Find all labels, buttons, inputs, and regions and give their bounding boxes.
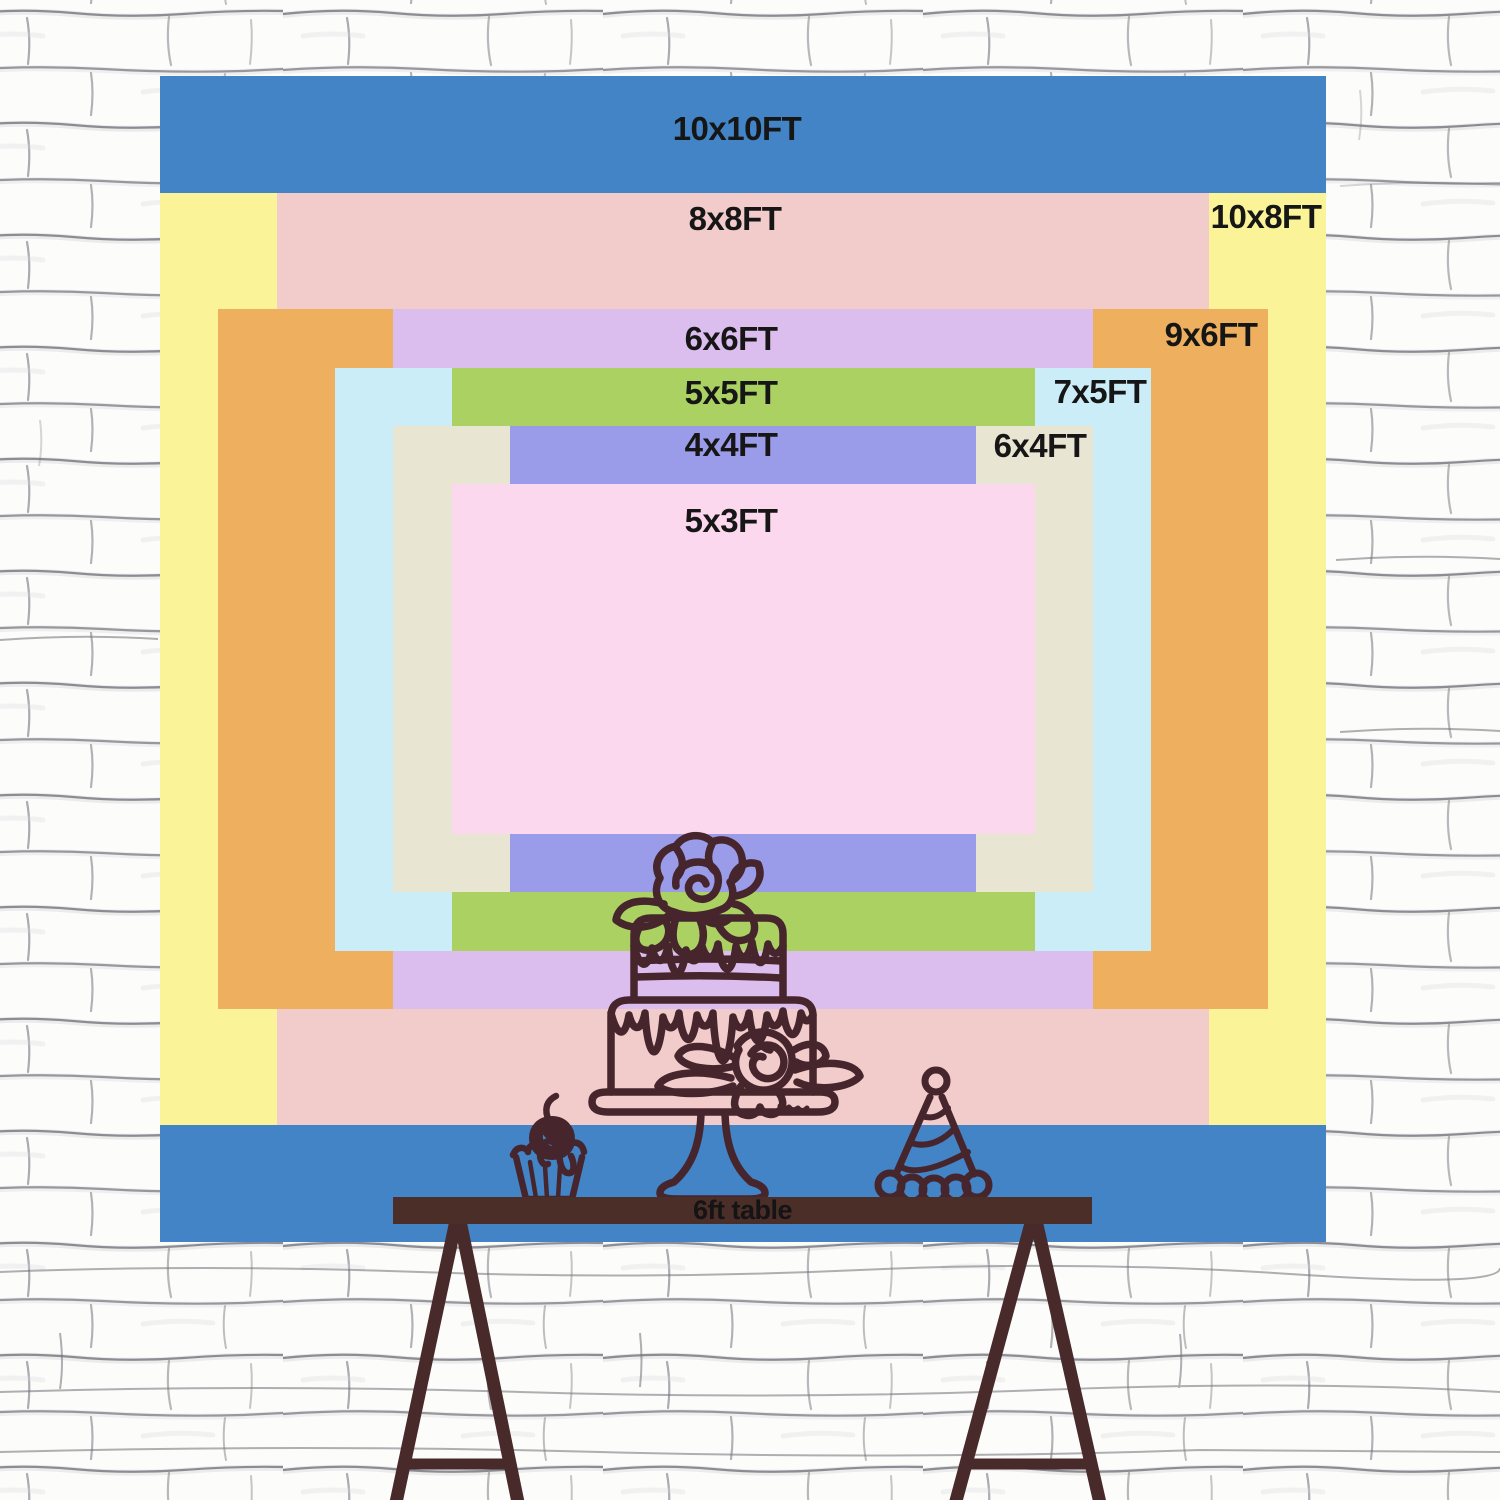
party-hat-icon: [878, 1070, 989, 1202]
backdrop-size-chart-page: 10x10FT10x8FT8x8FT9x6FT6x6FT7x5FT5x5FT6x…: [0, 0, 1500, 1500]
wedding-cake-illustration: [592, 836, 860, 1199]
table-top: 6ft table: [393, 1197, 1092, 1224]
easel-legs: [394, 1216, 1102, 1500]
table-label: 6ft table: [693, 1195, 792, 1226]
cupcake-icon: [513, 1096, 584, 1199]
dessert-table-illustration: [0, 0, 1500, 1500]
